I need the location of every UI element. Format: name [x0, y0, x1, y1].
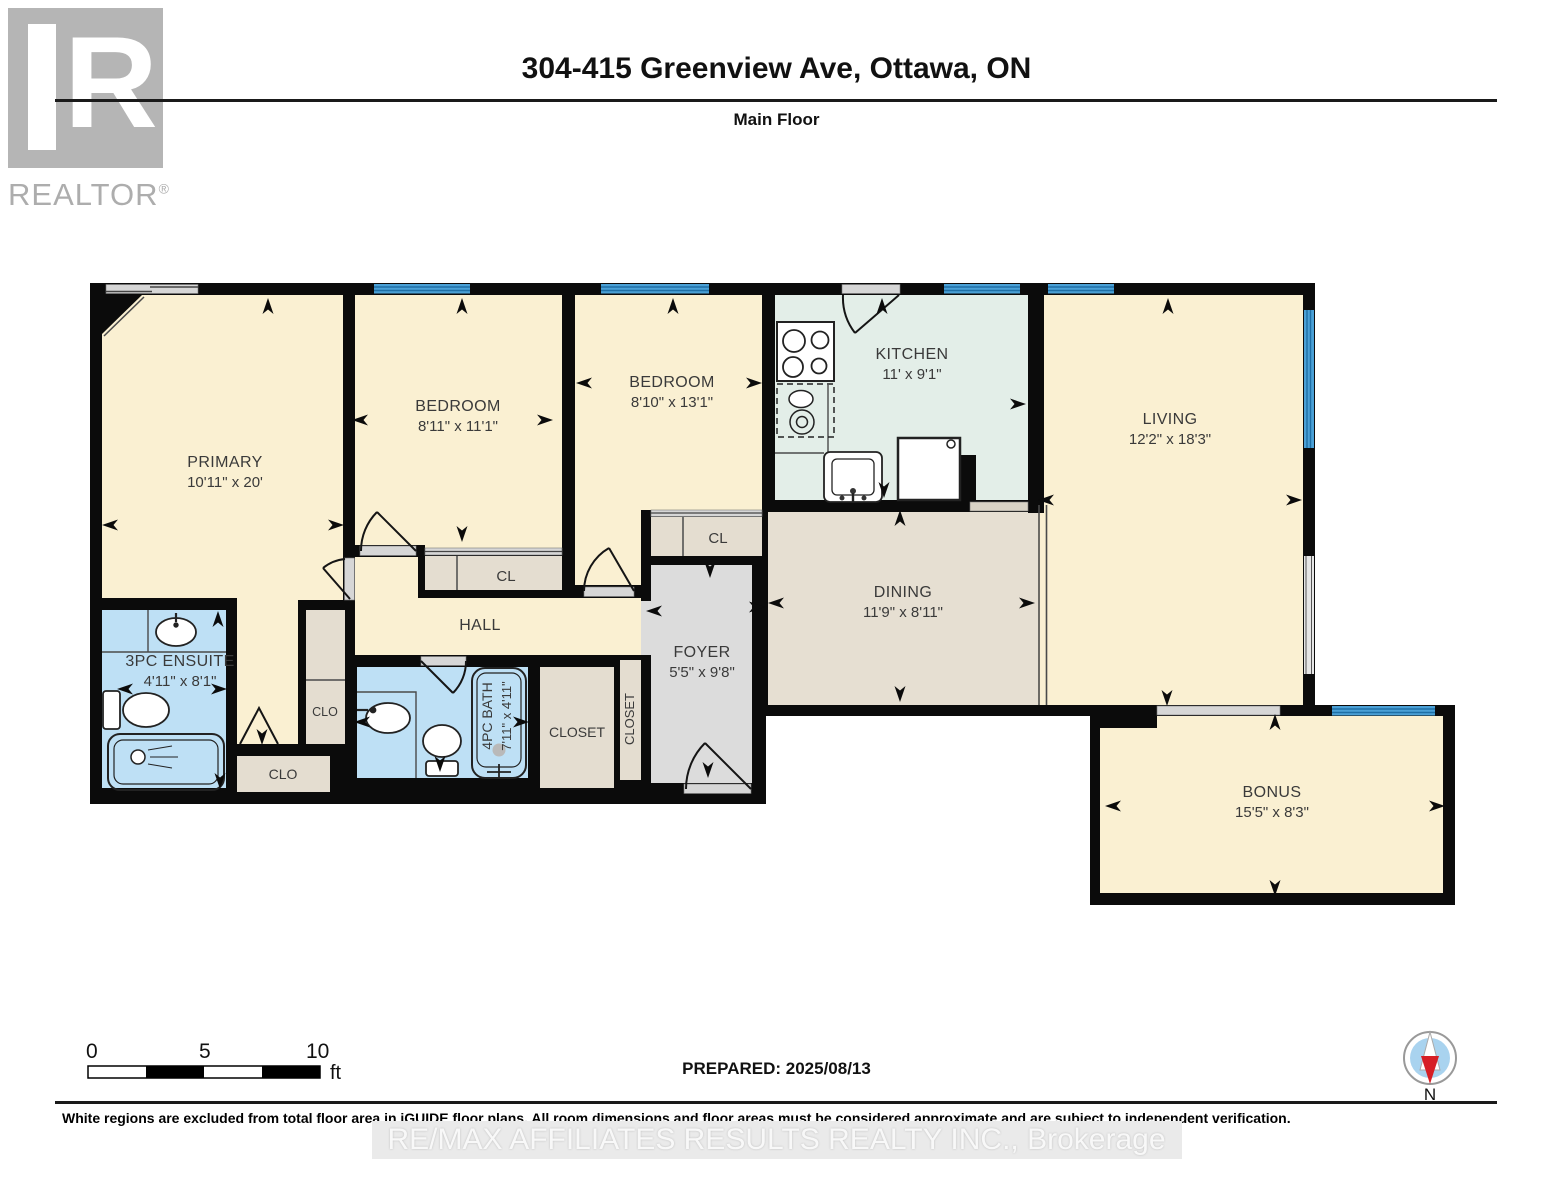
room-dims-bonus: 15'5" x 8'3": [1235, 804, 1309, 821]
ensuite-toilet-icon: [103, 691, 169, 729]
room-label-bonus: BONUS: [1243, 784, 1302, 801]
window-living-right: [1304, 310, 1314, 448]
room-label-bath: 4PC BATH: [479, 682, 495, 749]
room-dims-foyer: 5'5" x 9'8": [669, 664, 735, 681]
closet-label-entry: CLOSET: [622, 693, 637, 745]
room-label-dining: DINING: [874, 584, 932, 601]
hall-foyer-opening: [641, 601, 651, 655]
closet-clo-hall-floor: [306, 610, 345, 744]
kitchen-sink-icon: [824, 452, 882, 503]
room-dims-bath: 7'11" x 4'11": [499, 681, 514, 751]
scale-end: 10: [306, 1040, 329, 1063]
room-dims-ensuite: 4'11" x 8'1": [144, 673, 217, 690]
closet-cl-bedroom-floor: [425, 556, 562, 590]
window-bedroom2: [601, 284, 709, 294]
opening-kitchen-dining: [970, 502, 1028, 511]
brokerage-watermark: RE/MAX AFFILIATES RESULTS REALTY INC., B…: [371, 1121, 1181, 1159]
room-label-ensuite: 3PC ENSUITE: [125, 653, 234, 670]
scale-start: 0: [86, 1040, 98, 1063]
room-dims-kitchen: 11' x 9'1": [882, 366, 941, 383]
room-label-kitchen: KITCHEN: [875, 346, 948, 363]
opening-bedroom1-door: [360, 546, 416, 556]
room-label-bedroom2: BEDROOM: [629, 374, 714, 391]
scale-mid: 5: [199, 1040, 211, 1063]
room-dims-dining: 11'9" x 8'11": [863, 604, 943, 621]
closet-label-main: CLOSET: [549, 724, 605, 740]
room-label-hall: HALL: [459, 617, 501, 634]
room-label-foyer: FOYER: [673, 644, 730, 661]
floorplan-drawing: PRIMARY 10'11" x 20' BEDROOM 8'11" x 11'…: [0, 0, 1553, 1200]
room-dims-living: 12'2" x 18'3": [1129, 431, 1211, 448]
fridge-icon: [898, 438, 960, 500]
stove-icon: [777, 322, 834, 381]
room-living-floor: [1038, 295, 1303, 705]
window-kitchen: [944, 284, 1020, 294]
opening-bath-door: [421, 657, 466, 666]
scale-unit: ft: [330, 1062, 342, 1084]
room-dims-bedroom1: 8'11" x 11'1": [418, 418, 498, 435]
window-bedroom1: [374, 284, 470, 294]
closet-label-cl-bedroom: CL: [496, 568, 515, 585]
closet-track-bedroom1: [425, 548, 562, 555]
room-dims-primary: 10'11" x 20': [187, 474, 263, 491]
closet-label-clo-primary: CLO: [269, 766, 298, 782]
opening-kitchen-door: [842, 285, 900, 294]
prepared-date: PREPARED: 2025/08/13: [682, 1059, 871, 1079]
closet-track-foyer: [651, 510, 762, 517]
window-living-right-lower: [1304, 556, 1314, 674]
footer-divider: [55, 1101, 1497, 1104]
room-dims-bedroom2: 8'10" x 13'1": [631, 394, 713, 411]
bath-toilet-icon: [423, 725, 461, 776]
floorplan-page: R REALTOR® 304-415 Greenview Ave, Ottawa…: [0, 0, 1553, 1200]
window-bonus: [1332, 706, 1435, 716]
opening-bedroom2-door: [584, 587, 634, 597]
window-living-top: [1048, 284, 1114, 294]
room-label-living: LIVING: [1143, 411, 1198, 428]
closet-label-cl-foyer: CL: [708, 530, 727, 547]
room-label-bedroom1: BEDROOM: [415, 398, 500, 415]
opening-entry-door: [684, 784, 751, 794]
compass-icon: N: [1404, 1032, 1456, 1104]
scale-bar: 0 5 10 ft: [86, 1040, 342, 1084]
opening-living-bonus: [1157, 706, 1280, 715]
room-label-primary: PRIMARY: [187, 454, 262, 471]
closet-label-clo-hall: CLO: [312, 705, 338, 719]
sliding-door-primary: [106, 285, 198, 294]
closet-cl-foyer-floor: [651, 517, 762, 556]
